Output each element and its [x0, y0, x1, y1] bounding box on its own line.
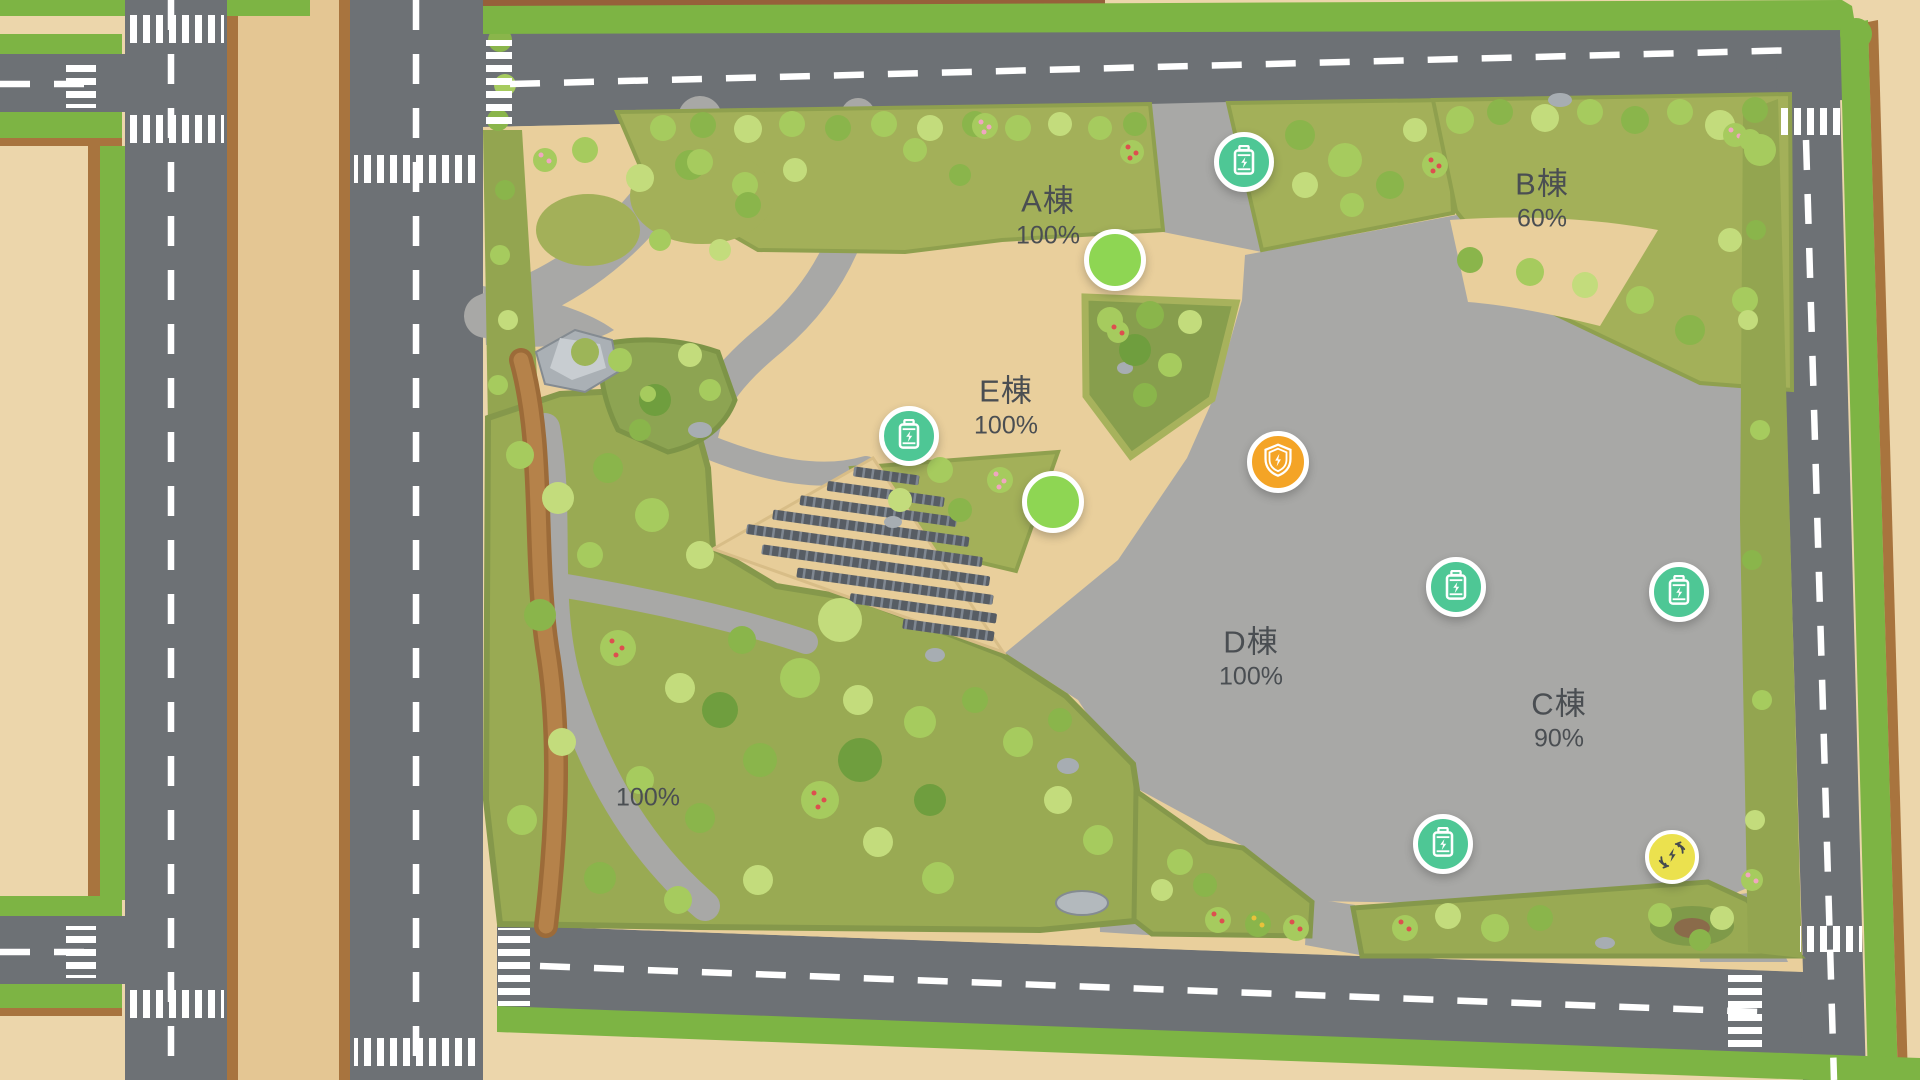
battery-icon [1230, 145, 1258, 180]
battery-marker-e[interactable] [879, 406, 939, 466]
park-zone-percent: 100% [616, 784, 680, 813]
shield-energy-icon [1262, 443, 1294, 482]
security-shield-marker[interactable] [1247, 431, 1309, 493]
status-marker-a[interactable] [1084, 229, 1146, 291]
energy-recycle-marker[interactable] [1645, 830, 1699, 884]
battery-marker-c[interactable] [1413, 814, 1473, 874]
energy-recycle-icon [1656, 839, 1688, 876]
battery-icon [895, 419, 923, 454]
battery-marker-a[interactable] [1214, 132, 1274, 192]
site-map: A棟 100% B棟 60% E棟 100% D棟 100% C棟 90% 10… [0, 0, 1920, 1080]
battery-marker-d-east[interactable] [1649, 562, 1709, 622]
battery-marker-d-west[interactable] [1426, 557, 1486, 617]
battery-icon [1429, 827, 1457, 862]
battery-icon [1442, 570, 1470, 605]
status-marker-e[interactable] [1022, 471, 1084, 533]
map-terrain [0, 0, 1920, 1080]
battery-icon [1665, 575, 1693, 610]
